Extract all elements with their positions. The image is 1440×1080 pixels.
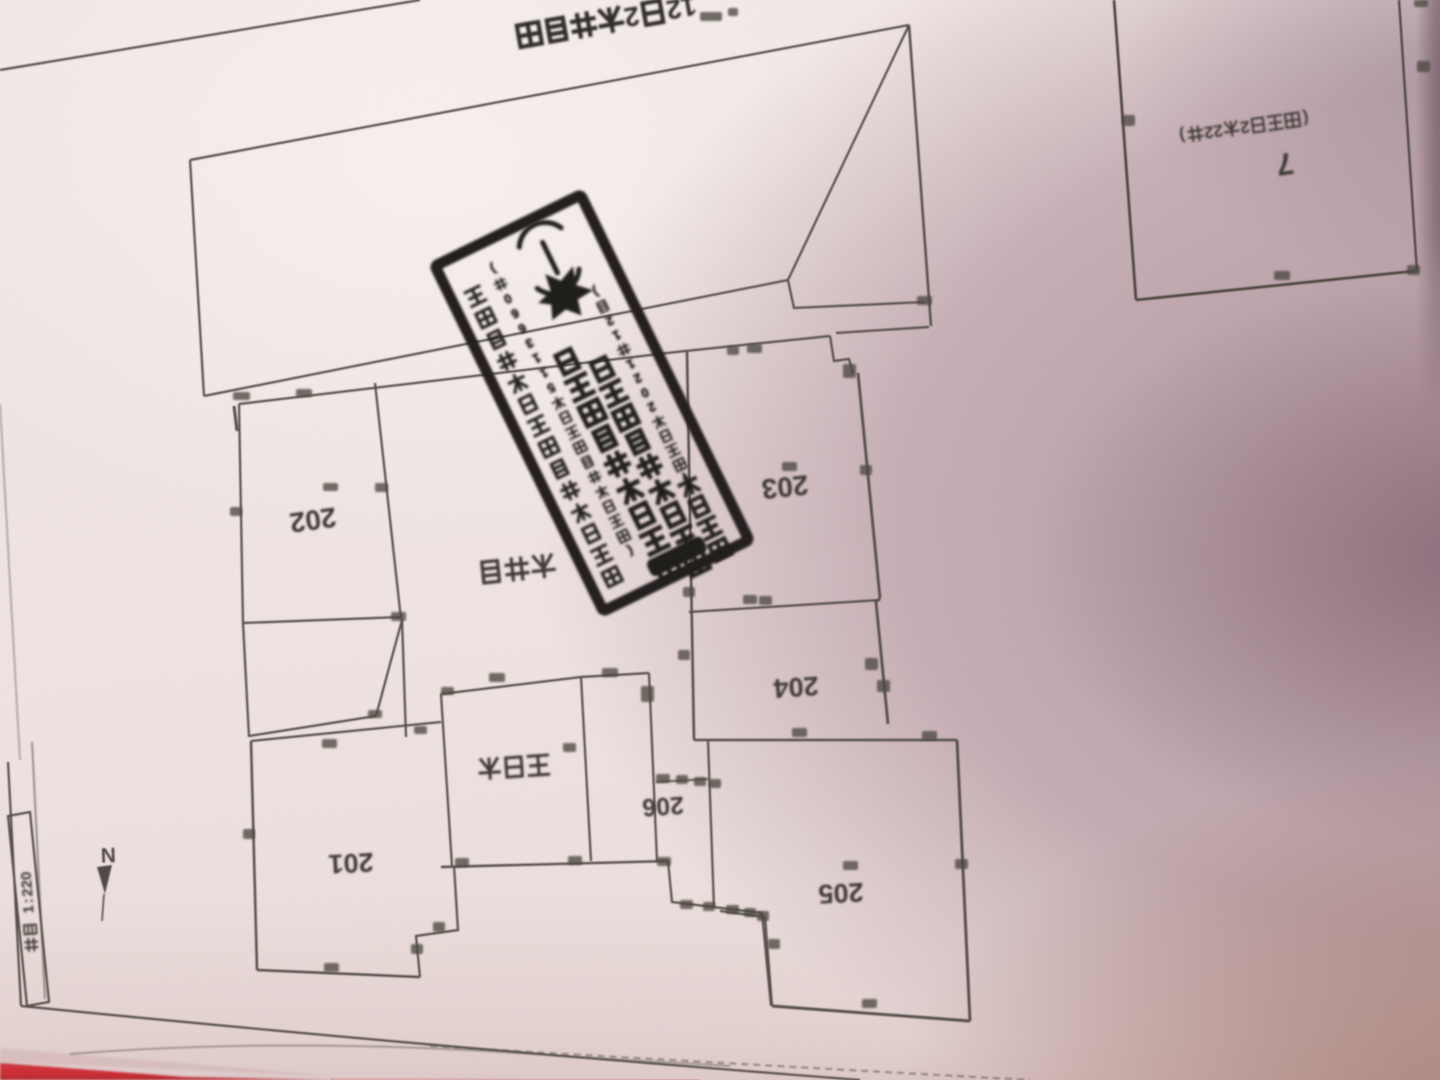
svg-text:2: 2 bbox=[1212, 121, 1224, 141]
svg-text:1: 1 bbox=[537, 365, 550, 382]
svg-text:1: 1 bbox=[530, 350, 543, 367]
svg-text:(: ( bbox=[625, 543, 636, 559]
svg-text:2: 2 bbox=[645, 399, 658, 416]
svg-text:6: 6 bbox=[516, 320, 529, 337]
svg-text:(: ( bbox=[1301, 109, 1310, 129]
svg-text:): ) bbox=[488, 262, 498, 277]
svg-text:6: 6 bbox=[509, 305, 522, 322]
svg-text:0: 0 bbox=[501, 291, 514, 308]
svg-text:5: 5 bbox=[545, 380, 558, 397]
svg-text:0: 0 bbox=[638, 384, 651, 401]
svg-text:1: 1 bbox=[679, 0, 699, 22]
svg-text:N: N bbox=[100, 843, 116, 867]
svg-text:2: 2 bbox=[664, 0, 684, 25]
svg-text:1: 1 bbox=[20, 905, 38, 915]
svg-text:2: 2 bbox=[18, 879, 36, 889]
svg-text:): ) bbox=[591, 284, 601, 299]
svg-text:203: 203 bbox=[760, 469, 810, 505]
svg-text:3: 3 bbox=[523, 335, 536, 352]
svg-text:206: 206 bbox=[641, 791, 685, 822]
svg-text:205: 205 bbox=[818, 877, 865, 909]
svg-text:2: 2 bbox=[1239, 117, 1251, 137]
svg-text:2: 2 bbox=[603, 313, 616, 330]
svg-text:2: 2 bbox=[631, 370, 644, 387]
svg-text:2: 2 bbox=[1203, 122, 1215, 142]
svg-text:204: 204 bbox=[772, 670, 819, 703]
svg-text:202: 202 bbox=[288, 501, 339, 538]
svg-text:1: 1 bbox=[624, 356, 637, 373]
svg-text:1: 1 bbox=[610, 327, 623, 344]
svg-text:2: 2 bbox=[622, 0, 642, 32]
svg-text:0: 0 bbox=[18, 871, 36, 881]
svg-text:7: 7 bbox=[1274, 145, 1296, 182]
svg-text::: : bbox=[20, 898, 37, 904]
svg-text:): ) bbox=[1178, 126, 1186, 146]
svg-text:201: 201 bbox=[328, 847, 375, 879]
svg-text:2: 2 bbox=[19, 888, 37, 898]
svg-text:(: ( bbox=[681, 471, 692, 487]
